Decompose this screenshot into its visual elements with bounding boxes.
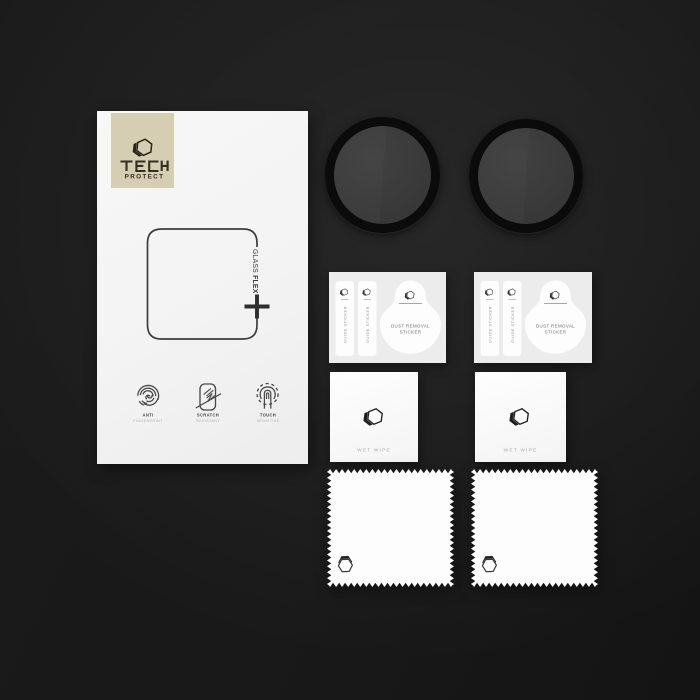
svg-text:TOUCH: TOUCH <box>260 413 276 418</box>
svg-text:RESISTANT: RESISTANT <box>196 419 221 423</box>
svg-text:WET WIPE: WET WIPE <box>357 448 391 454</box>
svg-text:GUIDE STICKER: GUIDE STICKER <box>342 306 347 343</box>
svg-text:PROTECT: PROTECT <box>125 173 165 180</box>
svg-text:GLASS FLEX: GLASS FLEX <box>251 249 258 294</box>
svg-text:WET WIPE: WET WIPE <box>504 448 538 454</box>
svg-text:SCRATCH: SCRATCH <box>197 413 219 418</box>
svg-text:DUST REMOVAL: DUST REMOVAL <box>391 324 430 329</box>
svg-text:GUIDE STICKER: GUIDE STICKER <box>365 306 370 343</box>
svg-text:STICKER: STICKER <box>400 330 422 335</box>
svg-text:ANTI: ANTI <box>143 413 154 418</box>
svg-text:SENSITIVE: SENSITIVE <box>257 419 280 423</box>
svg-text:FINGERPRINT: FINGERPRINT <box>133 419 163 423</box>
